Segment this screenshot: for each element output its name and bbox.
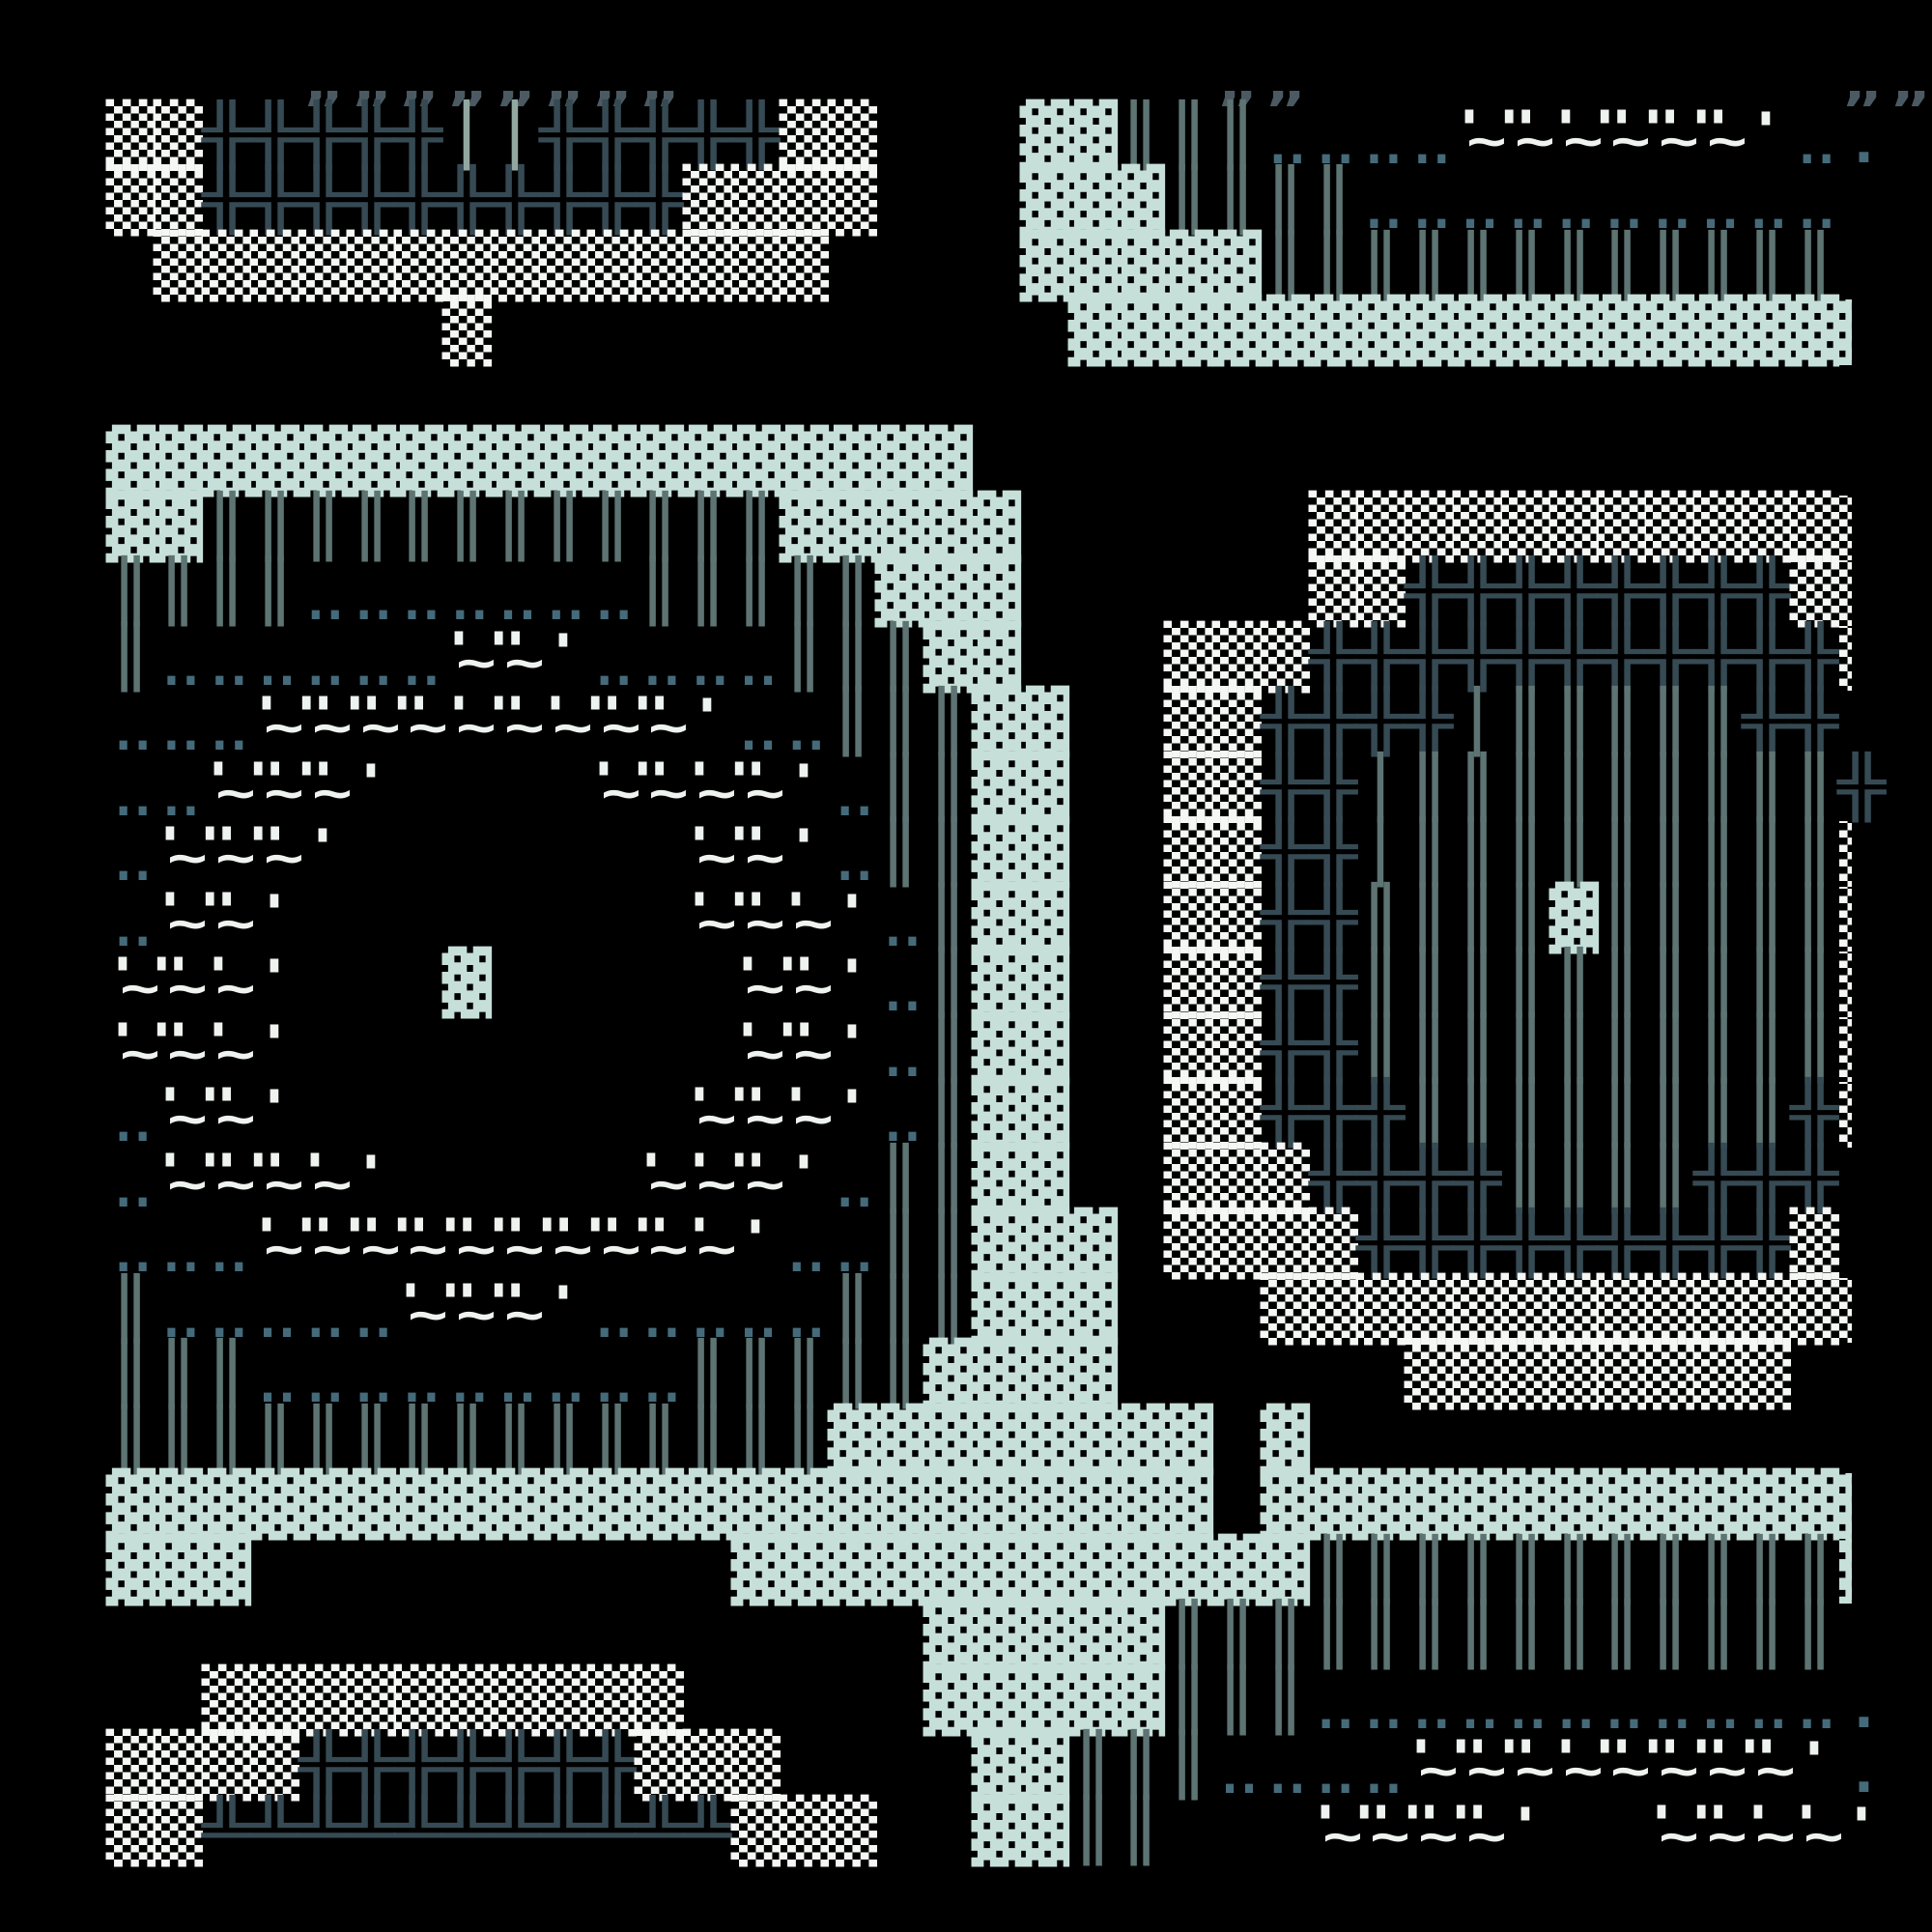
double-bar-tile: ║ bbox=[250, 496, 298, 561]
dark-shade-tile: ▓ bbox=[1116, 1473, 1164, 1539]
double-bar-tile: ║ bbox=[875, 1148, 923, 1213]
dot-pair-tile: ‥ bbox=[539, 560, 587, 626]
double-bar-tile: ║ bbox=[1549, 1017, 1598, 1083]
double-cross-tile: ╬ bbox=[1501, 1212, 1549, 1278]
double-cross-tile: ╬ bbox=[1645, 560, 1693, 626]
medium-shade-tile: ▒ bbox=[491, 235, 539, 300]
dark-shade-tile: ▓ bbox=[1116, 1408, 1164, 1474]
double-cross-tile: ╬ bbox=[635, 169, 683, 235]
double-bar-tile: ║ bbox=[1501, 756, 1549, 822]
double-bar-tile: ║ bbox=[1549, 1539, 1598, 1605]
wave-crest-double-tile: "~ bbox=[1742, 1734, 1790, 1800]
dark-shade-tile: ▓ bbox=[972, 1800, 1020, 1865]
medium-shade-tile: ▒ bbox=[1164, 1212, 1212, 1278]
double-cross-tile: ╬ bbox=[1356, 1082, 1405, 1148]
double-bar-tile: ║ bbox=[828, 691, 876, 756]
spray-tile: ' bbox=[780, 1148, 828, 1213]
medium-shade-tile: ▒ bbox=[1405, 1278, 1453, 1344]
double-bar-tile: ║ bbox=[1453, 952, 1501, 1017]
medium-shade-tile: ▒ bbox=[1453, 1278, 1501, 1344]
dot-pair-tile: ‥ bbox=[106, 691, 155, 756]
double-cross-tile: ╬ bbox=[1405, 1212, 1453, 1278]
dark-shade-tile: ▓ bbox=[250, 430, 298, 496]
medium-shade-tile: ▒ bbox=[154, 235, 202, 300]
medium-shade-tile: ▒ bbox=[1597, 1278, 1645, 1344]
double-cross-tile: ╬ bbox=[442, 169, 491, 235]
double-bar-tile: ║ bbox=[202, 1343, 250, 1408]
dark-shade-tile: ▓ bbox=[1597, 1473, 1645, 1539]
dot-pair-tile: ‥ bbox=[154, 691, 202, 756]
dark-shade-tile: ▓ bbox=[972, 1278, 1020, 1344]
dark-shade-tile: ▓ bbox=[1645, 1473, 1693, 1539]
medium-shade-tile: ▒ bbox=[1742, 1278, 1790, 1344]
double-cross-tile: ╬ bbox=[1309, 1148, 1357, 1213]
dot-pair-tile: ‥ bbox=[828, 756, 876, 822]
medium-shade-tile: ▒ bbox=[1790, 1278, 1838, 1344]
dark-shade-tile: ▓ bbox=[875, 560, 923, 626]
wave-crest-double-tile: "~ bbox=[1453, 1800, 1501, 1865]
wave-crest-double-tile: "~ bbox=[202, 1082, 250, 1148]
spray-tile: ' bbox=[250, 887, 298, 952]
dot-pair-tile: ‥ bbox=[780, 1278, 828, 1344]
double-bar-tile: ║ bbox=[1261, 169, 1309, 235]
medium-shade-tile: ▒ bbox=[1405, 496, 1453, 561]
dark-shade-tile: ▓ bbox=[1212, 299, 1261, 365]
double-cross-tile: ╬ bbox=[1309, 626, 1357, 692]
medium-shade-tile: ▒ bbox=[1693, 1343, 1742, 1408]
dark-shade-tile: ▓ bbox=[1116, 299, 1164, 365]
dark-shade-tile: ▓ bbox=[972, 496, 1020, 561]
double-bar-tile: ║ bbox=[1742, 235, 1790, 300]
double-cross-tile: ╬ bbox=[298, 1734, 347, 1800]
double-bar-tile: ║ bbox=[1356, 887, 1405, 952]
dot-pair-tile: ‥ bbox=[1742, 1669, 1790, 1735]
medium-shade-tile: ▒ bbox=[635, 235, 683, 300]
dark-shade-tile: ▓ bbox=[875, 430, 923, 496]
double-bar-tile: ║ bbox=[394, 1408, 442, 1474]
double-bar-tile: ║ bbox=[1356, 235, 1405, 300]
single-bar-tile: │ bbox=[1356, 756, 1405, 822]
double-bar-tile: ║ bbox=[1309, 1604, 1357, 1669]
double-cross-tile: ╬ bbox=[250, 104, 298, 170]
dark-shade-sliver-tile: ▓ bbox=[1837, 1539, 1886, 1605]
double-bar-tile: ║ bbox=[780, 626, 828, 692]
double-bar-tile: ║ bbox=[875, 1278, 923, 1344]
dark-shade-tile: ▓ bbox=[1020, 821, 1068, 887]
dark-shade-tile: ▓ bbox=[1597, 299, 1645, 365]
spray-tile: ' bbox=[347, 1148, 395, 1213]
medium-shade-tile: ▒ bbox=[442, 1669, 491, 1735]
medium-shade-tile: ▒ bbox=[202, 1734, 250, 1800]
dark-shade-tile: ▓ bbox=[1742, 299, 1790, 365]
double-cross-tile: ╬ bbox=[635, 104, 683, 170]
dot-pair-tile: ‥ bbox=[1356, 1669, 1405, 1735]
double-cross-tile: ╬ bbox=[347, 169, 395, 235]
medium-shade-tile: ▒ bbox=[1597, 496, 1645, 561]
medium-shade-tile: ▒ bbox=[1309, 1278, 1357, 1344]
wave-crest-tile: '~ bbox=[1790, 1800, 1838, 1865]
spray-tile: ' bbox=[298, 821, 347, 887]
double-bar-tile: ║ bbox=[1405, 1604, 1453, 1669]
double-bar-tile: ║ bbox=[154, 1408, 202, 1474]
medium-shade-sliver-tile: ▒ bbox=[1837, 626, 1886, 692]
double-cross-tile: ╬ bbox=[1597, 626, 1645, 692]
double-cross-tile: ╬ bbox=[1405, 691, 1453, 756]
dark-shade-tile: ▓ bbox=[1693, 1473, 1742, 1539]
double-bar-tile: ║ bbox=[1742, 1539, 1790, 1605]
medium-shade-sliver-tile: ▒ bbox=[1837, 496, 1886, 561]
dark-shade-tile: ▓ bbox=[923, 1408, 972, 1474]
dark-shade-tile: ▓ bbox=[923, 1539, 972, 1605]
dot-pair-tile: ‥ bbox=[780, 1212, 828, 1278]
double-bar-tile: ║ bbox=[1212, 169, 1261, 235]
dark-shade-tile: ▓ bbox=[1116, 235, 1164, 300]
dot-pair-tile: ‥ bbox=[539, 1343, 587, 1408]
double-tee-up-tile: ╩ bbox=[442, 1800, 491, 1865]
dark-shade-tile: ▓ bbox=[683, 1473, 731, 1539]
double-bar-tile: ║ bbox=[1693, 756, 1742, 822]
double-bar-tile: ║ bbox=[1693, 821, 1742, 887]
double-bar-tile: ║ bbox=[154, 1343, 202, 1408]
medium-shade-tile: ▒ bbox=[1212, 821, 1261, 887]
dark-shade-tile: ▓ bbox=[250, 1473, 298, 1539]
double-bar-tile: ║ bbox=[1164, 169, 1212, 235]
dark-shade-tile: ▓ bbox=[202, 1473, 250, 1539]
dark-shade-tile: ▓ bbox=[1068, 1473, 1117, 1539]
dark-shade-tile: ▓ bbox=[780, 496, 828, 561]
double-bar-tile: ║ bbox=[1549, 691, 1598, 756]
dark-shade-tile: ▓ bbox=[828, 1473, 876, 1539]
dot-tile: . bbox=[1837, 104, 1886, 170]
medium-shade-tile: ▒ bbox=[1309, 1212, 1357, 1278]
dot-pair-tile: ‥ bbox=[1356, 104, 1405, 170]
dark-shade-tile: ▓ bbox=[923, 430, 972, 496]
double-bar-tile: ║ bbox=[106, 1278, 155, 1344]
double-bar-tile: ║ bbox=[106, 1343, 155, 1408]
medium-shade-tile: ▒ bbox=[394, 235, 442, 300]
double-bar-tile: ║ bbox=[1405, 235, 1453, 300]
dot-pair-tile: ‥ bbox=[875, 1082, 923, 1148]
dark-shade-tile: ▓ bbox=[1020, 691, 1068, 756]
double-cross-tile: ╬ bbox=[587, 104, 636, 170]
dot-pair-tile: ‥ bbox=[202, 626, 250, 692]
double-cross-tile: ╬ bbox=[1356, 626, 1405, 692]
double-bar-tile: ║ bbox=[1453, 1604, 1501, 1669]
dark-shade-tile: ▓ bbox=[106, 496, 155, 561]
double-cross-tile: ╬ bbox=[1261, 821, 1309, 887]
double-cross-tile: ╬ bbox=[1309, 756, 1357, 822]
double-bar-tile: ║ bbox=[1693, 235, 1742, 300]
double-bar-tile: ║ bbox=[1597, 1082, 1645, 1148]
dark-shade-tile: ▓ bbox=[1164, 1539, 1212, 1605]
dark-shade-tile: ▓ bbox=[1020, 1343, 1068, 1408]
medium-shade-tile: ▒ bbox=[250, 1734, 298, 1800]
dark-shade-tile: ▓ bbox=[154, 430, 202, 496]
double-bar-tile: ║ bbox=[1645, 887, 1693, 952]
dot-tile: . bbox=[1837, 1669, 1886, 1735]
double-bar-tile: ║ bbox=[875, 626, 923, 692]
wave-crest-double-tile: "~ bbox=[202, 887, 250, 952]
medium-shade-sliver-tile: ▒ bbox=[1837, 821, 1886, 887]
single-bar-pale-tile: │ bbox=[491, 104, 539, 170]
dot-pair-tile: ‥ bbox=[1790, 1669, 1838, 1735]
dark-shade-tile: ▓ bbox=[875, 1473, 923, 1539]
double-cross-tile: ╬ bbox=[1742, 1212, 1790, 1278]
double-bar-tile: ║ bbox=[828, 1278, 876, 1344]
dark-shade-tile: ▓ bbox=[972, 1604, 1020, 1669]
double-cross-tile: ╬ bbox=[1261, 691, 1309, 756]
dark-shade-tile: ▓ bbox=[1020, 1082, 1068, 1148]
dark-shade-tile: ▓ bbox=[298, 1473, 347, 1539]
double-bar-tile: ║ bbox=[1597, 1604, 1645, 1669]
spray-tile: ' bbox=[539, 1278, 587, 1344]
double-bar-tile: ║ bbox=[1501, 887, 1549, 952]
dot-pair-tile: ‥ bbox=[731, 691, 780, 756]
double-cross-tile: ╬ bbox=[1693, 626, 1742, 692]
dark-shade-tile: ▓ bbox=[491, 1473, 539, 1539]
dark-shade-tile: ▓ bbox=[1164, 235, 1212, 300]
dot-pair-tile: ‥ bbox=[875, 952, 923, 1017]
dot-pair-tile: ‥ bbox=[1597, 169, 1645, 235]
game-map[interactable]: „„„„„„„„„„„„▒▒╬╬╬╬╬││╬╬╬╬╬▒▒▓▓║║║‥‥‥‥'~"… bbox=[0, 0, 1932, 1932]
double-bar-tile: ║ bbox=[875, 691, 923, 756]
double-cross-tile: ╬ bbox=[1309, 1082, 1357, 1148]
dark-shade-tile: ▓ bbox=[154, 1539, 202, 1605]
dark-shade-tile: ▓ bbox=[1212, 1539, 1261, 1605]
medium-shade-tile: ▒ bbox=[539, 235, 587, 300]
tick-pair-tile: „ bbox=[539, 39, 587, 104]
double-cross-tile: ╬ bbox=[587, 1734, 636, 1800]
double-cross-tile: ╬ bbox=[298, 169, 347, 235]
medium-shade-tile: ▒ bbox=[683, 1734, 731, 1800]
double-bar-tile: ║ bbox=[1261, 1604, 1309, 1669]
dot-pair-tile: ‥ bbox=[491, 1343, 539, 1408]
medium-shade-tile: ▒ bbox=[202, 235, 250, 300]
dot-pair-tile: ‥ bbox=[347, 626, 395, 692]
dark-shade-tile: ▓ bbox=[972, 1212, 1020, 1278]
double-bar-tile: ║ bbox=[250, 560, 298, 626]
medium-shade-tile: ▒ bbox=[539, 1669, 587, 1735]
double-bar-tile: ║ bbox=[923, 1278, 972, 1344]
double-tee-up-tile: ╩ bbox=[539, 1800, 587, 1865]
medium-shade-tile: ▒ bbox=[1261, 1212, 1309, 1278]
double-cross-tile: ╬ bbox=[1742, 560, 1790, 626]
wave-crest-double-tile: "~ bbox=[731, 756, 780, 822]
medium-shade-tile: ▒ bbox=[1356, 496, 1405, 561]
wave-crest-tile: '~ bbox=[202, 952, 250, 1017]
medium-shade-tile: ▒ bbox=[154, 1734, 202, 1800]
double-bar-tile: ║ bbox=[780, 560, 828, 626]
dark-shade-tile: ▓ bbox=[1501, 299, 1549, 365]
dark-shade-tile: ▓ bbox=[828, 1539, 876, 1605]
tick-pair-tile: „ bbox=[491, 39, 539, 104]
double-cross-tile: ╬ bbox=[347, 104, 395, 170]
double-bar-tile: ║ bbox=[875, 1343, 923, 1408]
double-bar-tile: ║ bbox=[1309, 1539, 1357, 1605]
double-cross-tile: ╬ bbox=[1309, 691, 1357, 756]
dot-pair-tile: ‥ bbox=[154, 1212, 202, 1278]
spray-tile: ' bbox=[1790, 1734, 1838, 1800]
double-bar-tile: ║ bbox=[202, 496, 250, 561]
dark-shade-tile: ▓ bbox=[972, 756, 1020, 822]
single-bar-tile: │ bbox=[1356, 821, 1405, 887]
double-bar-tile: ║ bbox=[1453, 887, 1501, 952]
double-bar-tile: ║ bbox=[1405, 821, 1453, 887]
medium-shade-tile: ▒ bbox=[298, 235, 347, 300]
double-cross-tile: ╬ bbox=[1837, 756, 1886, 822]
double-bar-tile: ║ bbox=[106, 626, 155, 692]
medium-shade-tile: ▒ bbox=[1405, 1343, 1453, 1408]
tick-pair-tile: „ bbox=[635, 39, 683, 104]
spray-tile: ' bbox=[250, 1017, 298, 1083]
dark-shade-tile: ▓ bbox=[1020, 1539, 1068, 1605]
spray-tile: ' bbox=[828, 952, 876, 1017]
medium-shade-tile: ▒ bbox=[587, 1669, 636, 1735]
dot-pair-tile: ‥ bbox=[298, 1343, 347, 1408]
dark-shade-tile: ▓ bbox=[875, 1408, 923, 1474]
dot-pair-tile: ‥ bbox=[587, 1278, 636, 1344]
dot-pair-tile: ‥ bbox=[1549, 1669, 1598, 1735]
dark-shade-tile: ▓ bbox=[923, 1473, 972, 1539]
double-bar-tile: ║ bbox=[1212, 1604, 1261, 1669]
medium-shade-tile: ▒ bbox=[1549, 1278, 1598, 1344]
double-bar-tile: ║ bbox=[347, 1408, 395, 1474]
medium-shade-tile: ▒ bbox=[828, 1800, 876, 1865]
double-bar-tile: ║ bbox=[1549, 1082, 1598, 1148]
medium-shade-tile: ▒ bbox=[780, 1800, 828, 1865]
double-bar-tile: ║ bbox=[923, 1148, 972, 1213]
spray-tile: ' bbox=[731, 1212, 780, 1278]
spray-tile: ' bbox=[1742, 104, 1790, 170]
double-bar-tile: ║ bbox=[1693, 1082, 1742, 1148]
dark-shade-tile: ▓ bbox=[972, 952, 1020, 1017]
double-tee-up-tile: ╩ bbox=[683, 1800, 731, 1865]
double-bar-tile: ║ bbox=[1212, 1669, 1261, 1735]
double-bar-tile: ║ bbox=[1405, 1082, 1453, 1148]
dark-shade-tile: ▓ bbox=[1068, 1212, 1117, 1278]
double-cross-tile: ╬ bbox=[1597, 560, 1645, 626]
dark-shade-tile: ▓ bbox=[1020, 1669, 1068, 1735]
medium-shade-tile: ▒ bbox=[491, 1669, 539, 1735]
double-cross-tile: ╬ bbox=[394, 104, 442, 170]
double-cross-tile: ╬ bbox=[1261, 952, 1309, 1017]
spray-tile: ' bbox=[828, 887, 876, 952]
dark-shade-tile: ▓ bbox=[1020, 1148, 1068, 1213]
dark-shade-tile: ▓ bbox=[780, 1539, 828, 1605]
double-bar-tile: ║ bbox=[1597, 1539, 1645, 1605]
double-bar-tile: ║ bbox=[1693, 887, 1742, 952]
double-bar-tile: ║ bbox=[1501, 1017, 1549, 1083]
dot-pair-tile: ‥ bbox=[250, 626, 298, 692]
double-bar-tile: ║ bbox=[1597, 887, 1645, 952]
double-bar-tile: ║ bbox=[875, 821, 923, 887]
dot-pair-tile: ‥ bbox=[683, 626, 731, 692]
double-bar-tile: ║ bbox=[635, 560, 683, 626]
dot-pair-tile: ‥ bbox=[1549, 169, 1598, 235]
dark-shade-tile: ▓ bbox=[1116, 1604, 1164, 1669]
dark-shade-tile: ▓ bbox=[1164, 299, 1212, 365]
double-cross-tile: ╬ bbox=[491, 169, 539, 235]
double-bar-tile: ║ bbox=[683, 1343, 731, 1408]
double-bar-tile: ║ bbox=[1790, 952, 1838, 1017]
double-bar-tile: ║ bbox=[1645, 756, 1693, 822]
double-bar-tile: ║ bbox=[1405, 952, 1453, 1017]
double-bar-tile: ║ bbox=[1742, 1604, 1790, 1669]
double-bar-tile: ║ bbox=[731, 1343, 780, 1408]
double-bar-tile: ║ bbox=[539, 1408, 587, 1474]
dot-pair-tile: ‥ bbox=[1645, 169, 1693, 235]
double-bar-tile: ║ bbox=[1309, 169, 1357, 235]
medium-shade-tile: ▒ bbox=[106, 104, 155, 170]
double-bar-tile: ║ bbox=[875, 756, 923, 822]
wave-crest-double-tile: "~ bbox=[250, 821, 298, 887]
double-bar-tile: ║ bbox=[1693, 1539, 1742, 1605]
dark-shade-tile: ▓ bbox=[1116, 169, 1164, 235]
double-bar-tile: ║ bbox=[1742, 756, 1790, 822]
dark-shade-tile: ▓ bbox=[923, 626, 972, 692]
double-bar-tile: ║ bbox=[780, 1343, 828, 1408]
double-bar-tile: ║ bbox=[731, 560, 780, 626]
dot-pair-tile: ‥ bbox=[250, 1278, 298, 1344]
medium-shade-tile: ▒ bbox=[1501, 1278, 1549, 1344]
dot-pair-tile: ‥ bbox=[587, 560, 636, 626]
double-tee-up-tile: ╩ bbox=[394, 1800, 442, 1865]
double-cross-tile: ╬ bbox=[1356, 1212, 1405, 1278]
dark-shade-tile: ▓ bbox=[972, 1734, 1020, 1800]
double-cross-tile: ╬ bbox=[683, 104, 731, 170]
dark-shade-tile: ▓ bbox=[1356, 1473, 1405, 1539]
double-bar-tile: ║ bbox=[1549, 821, 1598, 887]
medium-shade-tile: ▒ bbox=[1501, 496, 1549, 561]
double-bar-tile: ║ bbox=[154, 560, 202, 626]
double-bar-tile: ║ bbox=[250, 1408, 298, 1474]
medium-shade-tile: ▒ bbox=[1790, 560, 1838, 626]
medium-shade-tile: ▒ bbox=[1309, 496, 1357, 561]
double-bar-tile: ║ bbox=[298, 1408, 347, 1474]
dot-pair-tile: ‥ bbox=[1501, 1669, 1549, 1735]
double-cross-tile: ╬ bbox=[1356, 691, 1405, 756]
double-bar-tile: ║ bbox=[923, 1017, 972, 1083]
dark-shade-tile: ▓ bbox=[731, 1473, 780, 1539]
medium-shade-tile: ▒ bbox=[1742, 496, 1790, 561]
dot-pair-tile: ‥ bbox=[635, 626, 683, 692]
dot-pair-tile: ‥ bbox=[1693, 169, 1742, 235]
dark-shade-tile: ▓ bbox=[347, 1473, 395, 1539]
double-cross-tile: ╬ bbox=[1405, 560, 1453, 626]
dark-shade-tile: ▓ bbox=[1020, 1408, 1068, 1474]
dark-shade-tile: ▓ bbox=[972, 821, 1020, 887]
dark-shade-tile: ▓ bbox=[1068, 1604, 1117, 1669]
medium-shade-tile: ▒ bbox=[683, 235, 731, 300]
medium-shade-tile: ▒ bbox=[1212, 626, 1261, 692]
double-bar-tile: ║ bbox=[1597, 821, 1645, 887]
double-bar-tile: ║ bbox=[1790, 756, 1838, 822]
medium-shade-tile: ▒ bbox=[1212, 952, 1261, 1017]
dark-shade-tile: ▓ bbox=[1068, 1539, 1117, 1605]
double-bar-tile: ║ bbox=[1453, 1082, 1501, 1148]
wave-crest-double-tile: "~ bbox=[780, 1017, 828, 1083]
medium-shade-tile: ▒ bbox=[731, 1734, 780, 1800]
dark-shade-tile: ▓ bbox=[923, 1604, 972, 1669]
double-cross-tile: ╬ bbox=[539, 104, 587, 170]
wave-crest-double-tile: "~ bbox=[491, 1278, 539, 1344]
medium-shade-tile: ▒ bbox=[731, 169, 780, 235]
medium-shade-tile: ▒ bbox=[683, 169, 731, 235]
dark-shade-tile: ▓ bbox=[1212, 235, 1261, 300]
tick-pair-tile: „ bbox=[298, 39, 347, 104]
double-bar-tile: ║ bbox=[1453, 821, 1501, 887]
double-bar-tile: ║ bbox=[347, 496, 395, 561]
